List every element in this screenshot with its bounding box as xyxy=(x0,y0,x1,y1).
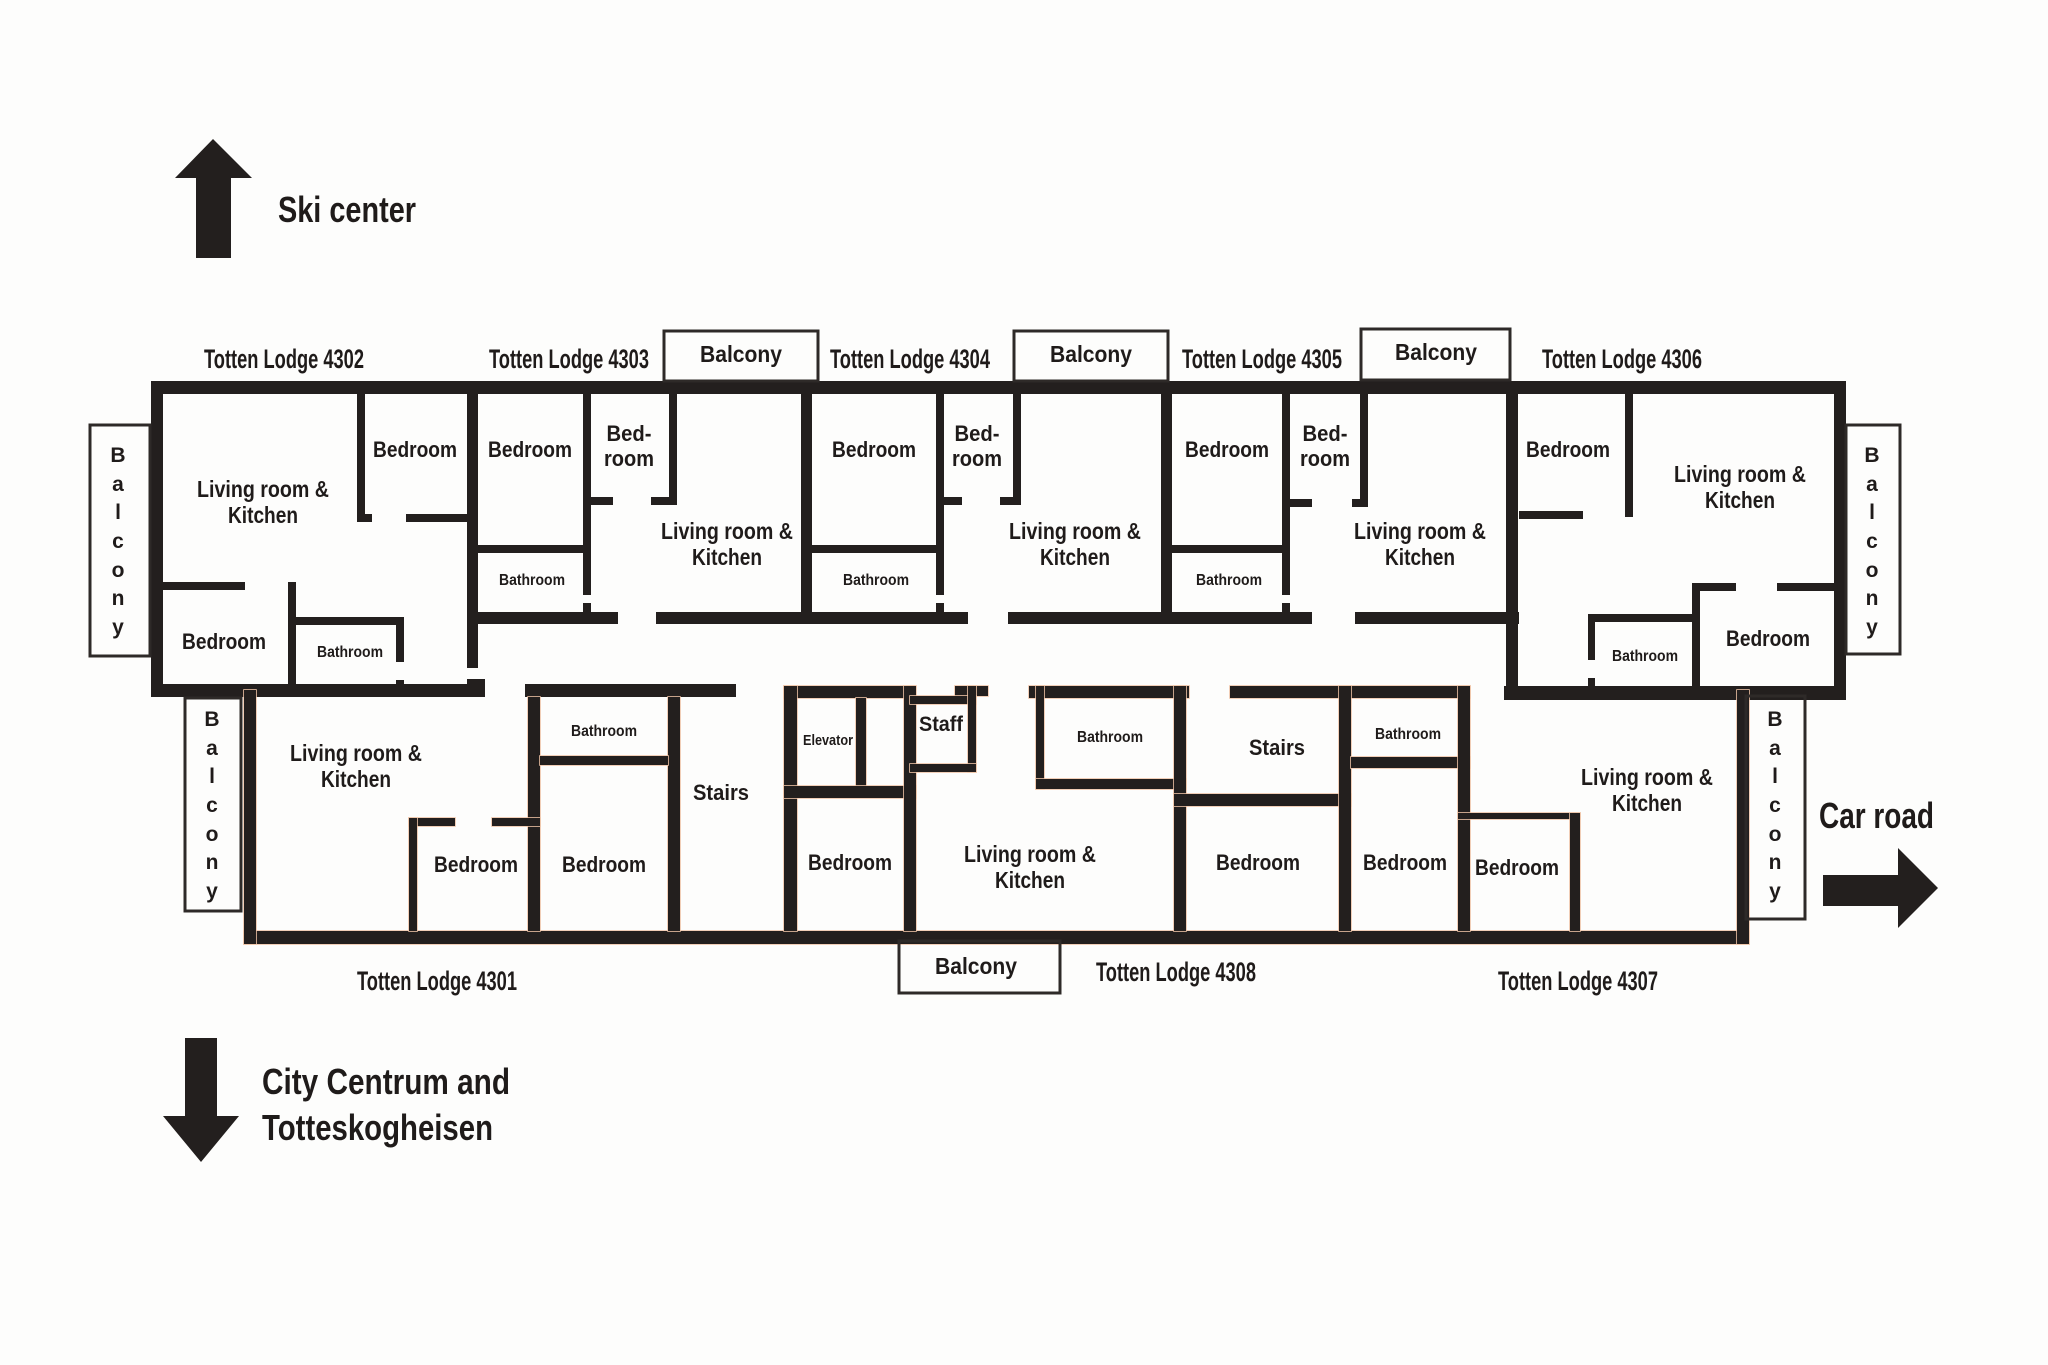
svg-text:Kitchen: Kitchen xyxy=(1040,544,1110,570)
svg-text:Bathroom: Bathroom xyxy=(499,572,565,589)
svg-text:Kitchen: Kitchen xyxy=(228,502,298,528)
svg-text:B: B xyxy=(204,708,219,731)
svg-text:Bathroom: Bathroom xyxy=(571,723,637,740)
svg-text:y: y xyxy=(206,880,218,903)
svg-text:Totten Lodge 4305: Totten Lodge 4305 xyxy=(1182,344,1342,374)
svg-text:Bedroom: Bedroom xyxy=(832,437,916,462)
svg-text:c: c xyxy=(1866,530,1878,553)
svg-text:y: y xyxy=(1769,880,1781,903)
svg-text:l: l xyxy=(115,501,121,524)
svg-text:o: o xyxy=(112,559,125,582)
svg-text:Living room &: Living room & xyxy=(1009,518,1141,544)
svg-text:Totten Lodge 4302: Totten Lodge 4302 xyxy=(204,344,364,374)
svg-text:a: a xyxy=(206,737,218,760)
svg-text:Bed-: Bed- xyxy=(1303,421,1348,446)
svg-text:Living room &: Living room & xyxy=(290,740,422,766)
svg-text:Bedroom: Bedroom xyxy=(373,437,457,462)
svg-text:Totten Lodge 4301: Totten Lodge 4301 xyxy=(357,966,517,996)
svg-text:Bedroom: Bedroom xyxy=(1185,437,1269,462)
svg-text:l: l xyxy=(1772,765,1778,788)
svg-text:Living room &: Living room & xyxy=(1674,461,1806,487)
svg-text:a: a xyxy=(1769,737,1781,760)
svg-text:l: l xyxy=(209,765,215,788)
svg-text:n: n xyxy=(1769,851,1782,874)
svg-text:n: n xyxy=(206,851,219,874)
svg-text:c: c xyxy=(206,794,218,817)
svg-text:Bedroom: Bedroom xyxy=(434,852,518,877)
svg-text:n: n xyxy=(1866,587,1879,610)
svg-text:B: B xyxy=(1767,708,1782,731)
svg-text:y: y xyxy=(112,616,124,639)
svg-text:Stairs: Stairs xyxy=(693,780,749,805)
svg-text:Kitchen: Kitchen xyxy=(995,867,1065,893)
svg-text:Bed-: Bed- xyxy=(955,421,1000,446)
svg-text:a: a xyxy=(1866,473,1878,496)
svg-text:Bathroom: Bathroom xyxy=(1375,726,1441,743)
svg-text:Bathroom: Bathroom xyxy=(317,644,383,661)
svg-text:Balcony: Balcony xyxy=(1395,339,1477,365)
svg-text:City Centrum and: City Centrum and xyxy=(262,1061,510,1102)
svg-text:y: y xyxy=(1866,616,1878,639)
svg-text:Bedroom: Bedroom xyxy=(1526,437,1610,462)
svg-text:Bedroom: Bedroom xyxy=(1475,855,1559,880)
svg-text:Balcony: Balcony xyxy=(935,953,1017,979)
svg-text:c: c xyxy=(1769,794,1781,817)
svg-text:Kitchen: Kitchen xyxy=(1705,487,1775,513)
svg-text:B: B xyxy=(110,444,125,467)
svg-text:Bedroom: Bedroom xyxy=(808,850,892,875)
svg-text:a: a xyxy=(112,473,124,496)
svg-text:Bed-: Bed- xyxy=(607,421,652,446)
svg-text:Totten Lodge 4304: Totten Lodge 4304 xyxy=(830,344,990,374)
svg-text:o: o xyxy=(1769,823,1782,846)
svg-text:Stairs: Stairs xyxy=(1249,735,1305,760)
svg-text:Living room &: Living room & xyxy=(661,518,793,544)
svg-text:Totten Lodge 4308: Totten Lodge 4308 xyxy=(1096,957,1256,987)
svg-text:Bedroom: Bedroom xyxy=(182,629,266,654)
svg-text:B: B xyxy=(1864,444,1879,467)
svg-text:Kitchen: Kitchen xyxy=(1385,544,1455,570)
svg-text:Bedroom: Bedroom xyxy=(1216,850,1300,875)
svg-text:Living room &: Living room & xyxy=(1354,518,1486,544)
svg-text:o: o xyxy=(206,823,219,846)
svg-text:Ski center: Ski center xyxy=(278,189,416,230)
svg-text:Bedroom: Bedroom xyxy=(562,852,646,877)
svg-text:Bedroom: Bedroom xyxy=(1363,850,1447,875)
svg-text:Living room &: Living room & xyxy=(197,476,329,502)
svg-text:l: l xyxy=(1869,501,1875,524)
svg-text:Totten Lodge 4306: Totten Lodge 4306 xyxy=(1542,344,1702,374)
svg-text:Totten Lodge 4307: Totten Lodge 4307 xyxy=(1498,966,1658,996)
svg-text:Bedroom: Bedroom xyxy=(1726,626,1810,651)
svg-text:Staff: Staff xyxy=(919,713,964,736)
svg-text:o: o xyxy=(1866,559,1879,582)
svg-text:Kitchen: Kitchen xyxy=(321,766,391,792)
svg-text:room: room xyxy=(1300,446,1350,471)
svg-text:Balcony: Balcony xyxy=(1050,341,1132,367)
svg-text:Living room &: Living room & xyxy=(1581,764,1713,790)
svg-text:Totten Lodge 4303: Totten Lodge 4303 xyxy=(489,344,649,374)
svg-text:Bathroom: Bathroom xyxy=(1196,572,1262,589)
svg-text:Kitchen: Kitchen xyxy=(1612,790,1682,816)
svg-text:Kitchen: Kitchen xyxy=(692,544,762,570)
svg-text:Bathroom: Bathroom xyxy=(843,572,909,589)
svg-text:Totteskogheisen: Totteskogheisen xyxy=(262,1107,493,1148)
svg-text:Bedroom: Bedroom xyxy=(488,437,572,462)
svg-text:Elevator: Elevator xyxy=(803,732,853,749)
svg-text:Car road: Car road xyxy=(1819,795,1934,836)
svg-text:room: room xyxy=(952,446,1002,471)
svg-text:Living room &: Living room & xyxy=(964,841,1096,867)
svg-text:room: room xyxy=(604,446,654,471)
svg-text:n: n xyxy=(112,587,125,610)
svg-text:Balcony: Balcony xyxy=(700,341,782,367)
svg-text:Bathroom: Bathroom xyxy=(1077,729,1143,746)
svg-text:Bathroom: Bathroom xyxy=(1612,648,1678,665)
svg-text:c: c xyxy=(112,530,124,553)
